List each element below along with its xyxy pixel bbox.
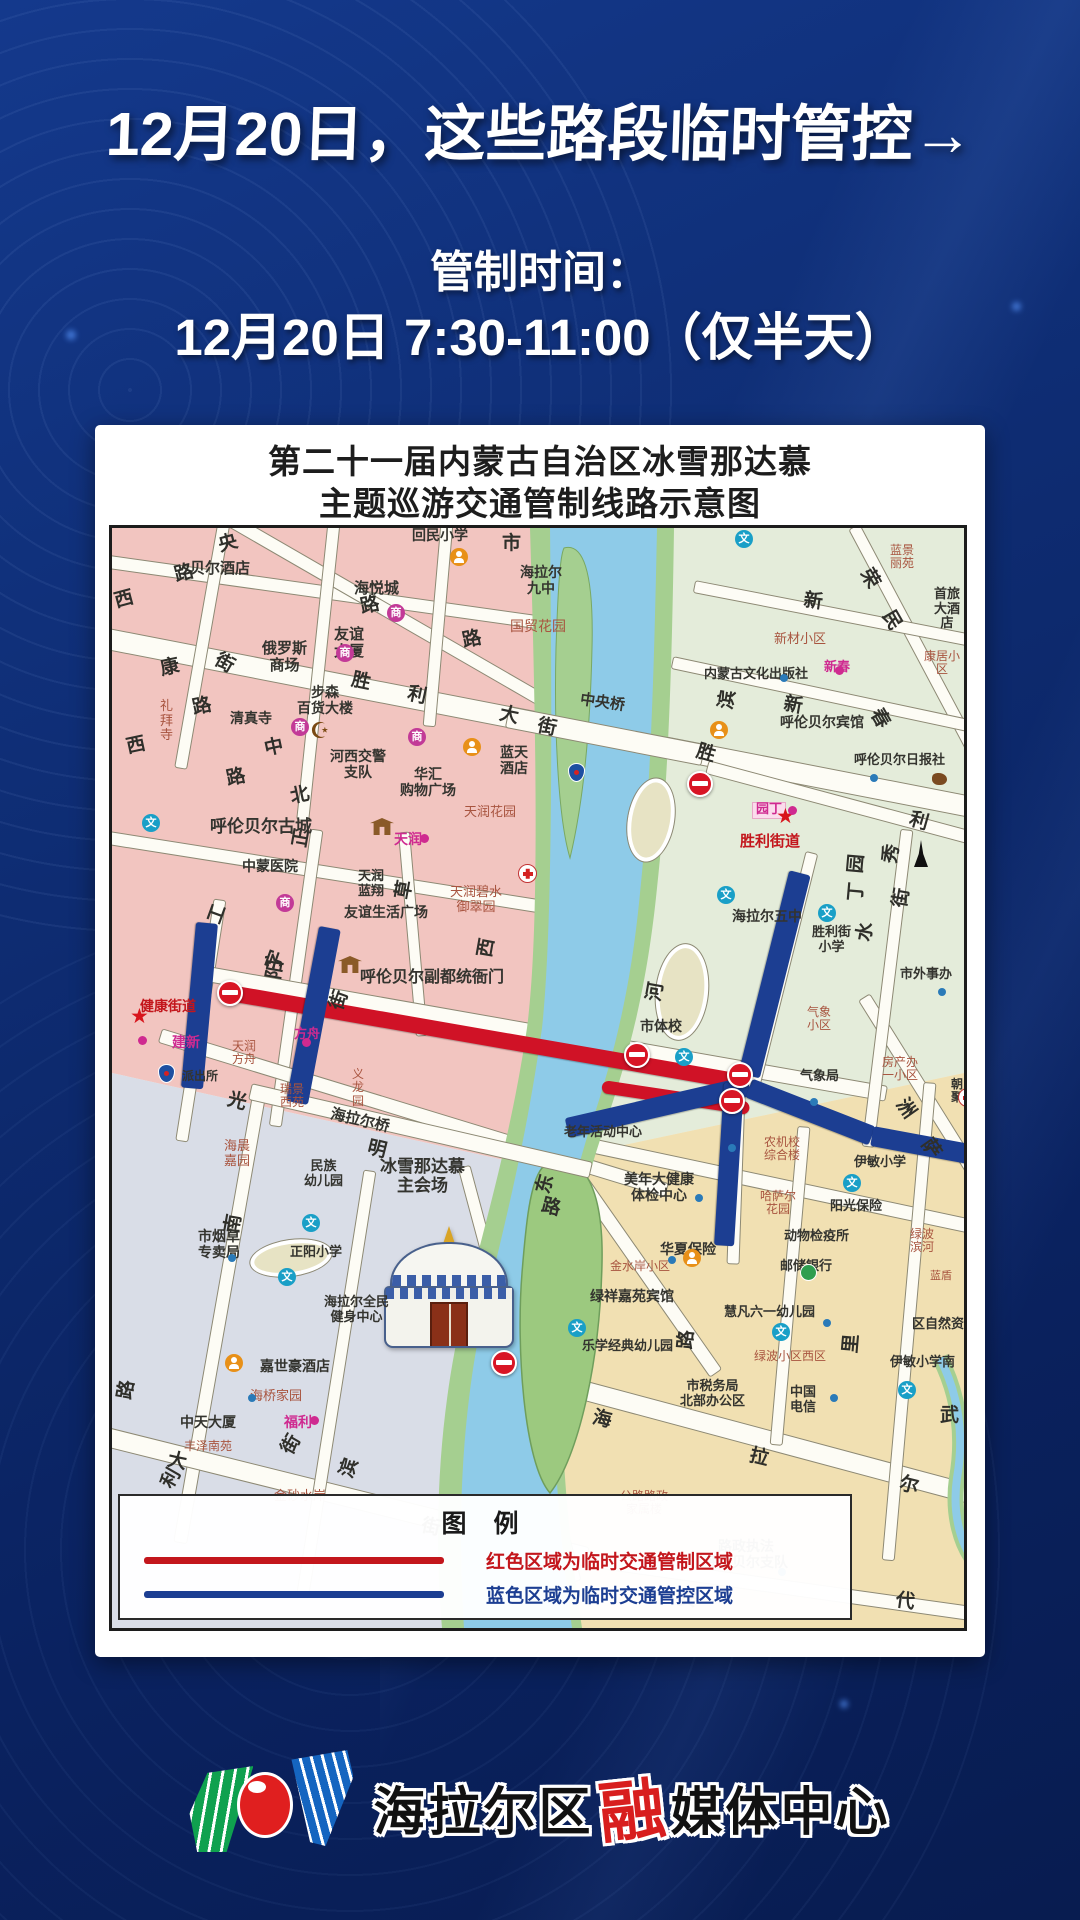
- legend-blue-label: 蓝色区域为临时交通管控区域: [486, 1581, 733, 1608]
- dotb-icon: [870, 774, 878, 782]
- map-label: 步森 百货大楼: [297, 686, 353, 717]
- map-label: 国贸花园: [510, 620, 566, 636]
- map-label: 蓝景 丽苑: [890, 544, 914, 571]
- no-entry-icon: [727, 1062, 753, 1088]
- map-label: 市税务局 北部办公区: [680, 1380, 745, 1409]
- map-label: 民族 幼儿园: [304, 1160, 343, 1189]
- map-label: 呼伦贝尔古城: [210, 818, 312, 837]
- dotb-icon: [728, 1144, 736, 1152]
- map-label: 绿波小区西区: [754, 1350, 826, 1363]
- yurt-body: [384, 1286, 514, 1348]
- legend-red-label: 红色区域为临时交通管制区域: [486, 1547, 733, 1574]
- wen-icon: 文: [142, 814, 160, 832]
- media-center-logo-icon: [189, 1748, 349, 1856]
- map-label: 美年大健康 体检中心: [624, 1173, 694, 1204]
- dotm-icon: [138, 1036, 147, 1045]
- map-label: 瑞景 西苑: [280, 1083, 304, 1110]
- shang-icon: 商: [276, 894, 294, 912]
- hotel-icon: [463, 738, 481, 756]
- no-entry-icon: [719, 1088, 745, 1114]
- dotb-icon: [248, 1394, 256, 1402]
- map-label: 呼伦贝尔日报社: [854, 754, 945, 769]
- map-label: 华汇 购物广场: [400, 768, 456, 799]
- logo-blue-fan: [291, 1750, 353, 1846]
- shang-icon: 商: [387, 604, 405, 622]
- wen-icon: 文: [735, 530, 753, 548]
- wen-icon: 文: [772, 1323, 790, 1341]
- map-label: 海晨 嘉园: [224, 1140, 250, 1169]
- map-label: 海拉尔五中: [732, 910, 802, 926]
- map-label: 福利: [284, 1416, 312, 1432]
- map-label: 金水岸小区: [610, 1260, 670, 1273]
- brand-highlight: 融: [593, 1755, 672, 1858]
- dotm-icon: [835, 666, 844, 675]
- poster: 12月20日，这些路段临时管控→ 管制时间： 12月20日 7:30-11:00…: [0, 0, 1080, 1920]
- control-time-label: 管制时间：: [0, 236, 1080, 300]
- footer-brand: 海拉尔区融媒体中心: [0, 1748, 1080, 1856]
- street-name-char: 市: [502, 528, 521, 555]
- map-label: 阳光保险: [830, 1200, 882, 1215]
- map-label: 海悦城: [354, 580, 399, 597]
- hotel-icon: [710, 721, 728, 739]
- dotm-icon: [302, 1038, 311, 1047]
- shang-icon: 商: [291, 718, 309, 736]
- map-label: 慧凡六一幼儿园: [724, 1306, 815, 1321]
- map-label: 派出所: [182, 1070, 218, 1083]
- map-label: 友谊生活广场: [344, 906, 428, 922]
- no-entry-icon: [491, 1350, 517, 1376]
- map-label: 海拉尔全民 健身中心: [324, 1296, 389, 1325]
- legend-row-red: 红色区域为临时交通管制区域: [144, 1547, 850, 1574]
- brand-prefix: 海拉尔区: [373, 1784, 593, 1842]
- map-legend: 图 例 红色区域为临时交通管制区域 蓝色区域为临时交通管控区域: [118, 1494, 852, 1620]
- logo-red-egg: [237, 1772, 293, 1838]
- street-name-char: 路: [670, 1329, 699, 1350]
- map-label: 天润 方舟: [232, 1040, 256, 1067]
- no-entry-icon: [687, 771, 713, 797]
- map-label: 市体校: [640, 1020, 682, 1036]
- street-name-char: 园: [840, 853, 869, 874]
- map-title-line2: 主题巡游交通管制线路示意图: [95, 483, 985, 525]
- map-canvas: 图 例 红色区域为临时交通管制区域 蓝色区域为临时交通管控区域 胜利大街胜利市央…: [112, 528, 964, 1628]
- map-label: 丰泽南苑: [184, 1440, 232, 1453]
- map-label: 中蒙医院: [242, 860, 298, 876]
- blue-line-swatch: [144, 1591, 444, 1598]
- hotel-icon: [225, 1354, 243, 1372]
- street-name-char: 丁: [840, 881, 869, 902]
- map-label: 老年活动中心: [564, 1126, 642, 1141]
- dotb-icon: [228, 1254, 236, 1262]
- sculpt-icon: [932, 773, 947, 785]
- wen-icon: 文: [302, 1214, 320, 1232]
- dotb-icon: [938, 988, 946, 996]
- map-label: 冰雪那达慕 主会场: [380, 1158, 465, 1196]
- legend-row-blue: 蓝色区域为临时交通管控区域: [144, 1581, 850, 1608]
- brand-suffix: 媒体中心: [671, 1784, 891, 1842]
- yurt-dome: [390, 1242, 508, 1286]
- hotel-icon: [683, 1249, 701, 1267]
- no-entry-icon: [624, 1042, 650, 1068]
- map-label: 伊敏小学南: [890, 1356, 955, 1371]
- street-name-char: 里: [835, 1333, 864, 1354]
- map-label: 呼伦贝尔副都统衙门: [360, 968, 504, 986]
- dotb-icon: [668, 1256, 676, 1264]
- map-label: 中天大厦: [180, 1416, 236, 1432]
- dotb-icon: [780, 674, 788, 682]
- map-label: 回民小学: [412, 529, 468, 545]
- map-label: 蓝盾: [930, 1270, 952, 1282]
- map-label: 天润碧水 御翠园: [450, 886, 502, 915]
- map-label: 农机校 综合楼: [764, 1136, 800, 1163]
- map-label: 区自然资: [912, 1318, 964, 1333]
- wen-icon: 文: [898, 1381, 916, 1399]
- map-label: 嘉世豪酒店: [260, 1360, 330, 1376]
- yurt-door: [430, 1302, 468, 1346]
- street-name-char: 代: [894, 1585, 917, 1614]
- map-label: 首旅 大酒店: [930, 588, 964, 632]
- map-label: 绿祥嘉苑宾馆: [590, 1290, 674, 1306]
- dotg-icon: [800, 1264, 817, 1281]
- no-entry-icon: [217, 980, 243, 1006]
- map-label: 房产办 一小区: [882, 1056, 918, 1083]
- wen-icon: 文: [843, 1174, 861, 1192]
- wen-icon: 文: [818, 904, 836, 922]
- glow-dot: [840, 1700, 848, 1708]
- map-label: 胜利街道: [740, 833, 800, 850]
- map-label: 气象局: [800, 1070, 839, 1085]
- cross-icon: [518, 864, 537, 883]
- legend-title: 图 例: [120, 1504, 850, 1540]
- page-title: 12月20日，这些路段临时管控→: [0, 84, 1080, 173]
- map-label: 海桥家园: [250, 1390, 302, 1405]
- wen-icon: 文: [278, 1268, 296, 1286]
- shang-icon: 商: [336, 644, 354, 662]
- map-label: 康居小区: [920, 650, 964, 677]
- map-label: 建新: [172, 1036, 200, 1052]
- map-card: 第二十一届内蒙古自治区冰雪那达慕 主题巡游交通管制线路示意图: [95, 425, 985, 1657]
- shang-icon: 商: [408, 728, 426, 746]
- map-label: 海拉尔 九中: [520, 566, 562, 597]
- map-label: 天润: [394, 833, 422, 849]
- map-label: 内蒙古文化出版社: [704, 668, 808, 683]
- map-label: 礼 拜 寺: [160, 700, 173, 744]
- hotel-icon: [450, 548, 468, 566]
- map-label: 气象 小区: [807, 1006, 831, 1033]
- map-label: 正阳小学: [290, 1246, 342, 1261]
- wen-icon: 文: [717, 886, 735, 904]
- map-label: 动物检疫所: [784, 1230, 849, 1245]
- star-icon: ★: [130, 1006, 149, 1027]
- map-label: 呼伦贝尔宾馆: [780, 716, 864, 732]
- street-name-char: 新: [802, 585, 825, 614]
- yurt-illustration: [384, 1226, 514, 1354]
- map-label: 义 龙 园: [352, 1068, 364, 1108]
- map-label: 胜利街 小学: [812, 926, 851, 955]
- map-label: 俄罗斯 商场: [262, 640, 307, 674]
- map-label: 天润 蓝翔: [358, 870, 384, 899]
- red-line-swatch: [144, 1557, 444, 1564]
- map-label: 绿波 滨河: [910, 1228, 934, 1255]
- wen-icon: 文: [675, 1048, 693, 1066]
- dotb-icon: [695, 1194, 703, 1202]
- map-label: 乐学经典幼儿园: [582, 1340, 673, 1355]
- dotb-icon: [830, 1394, 838, 1402]
- dotm-icon: [788, 806, 797, 815]
- map-label: 天润花园: [464, 806, 516, 821]
- map-frame: 图 例 红色区域为临时交通管制区域 蓝色区域为临时交通管控区域 胜利大街胜利市央…: [109, 525, 967, 1631]
- dotb-icon: [823, 1319, 831, 1327]
- brand-text: 海拉尔区融媒体中心: [373, 1754, 890, 1850]
- map-label: 蓝天 酒店: [500, 746, 528, 777]
- dotm-icon: [310, 1416, 319, 1425]
- dotm-icon: [420, 834, 429, 843]
- map-title-line1: 第二十一届内蒙古自治区冰雪那达慕: [95, 425, 985, 483]
- map-label: 清真寺: [230, 712, 272, 728]
- map-label: 新材小区: [774, 633, 826, 648]
- control-time-value: 12月20日 7:30-11:00（仅半天）: [0, 296, 1080, 370]
- map-label: 河西交警 支队: [330, 750, 386, 781]
- map-label: 市外事办: [900, 968, 952, 983]
- mosque-icon: ☪: [310, 720, 330, 742]
- map-label: 伊敏小学: [854, 1156, 906, 1171]
- wen-icon: 文: [568, 1319, 586, 1337]
- map-label: 贝尔酒店: [190, 560, 250, 577]
- street-name-char: 武: [940, 1400, 959, 1427]
- map-label: 中国 电信: [790, 1386, 816, 1415]
- dotb-icon: [810, 1098, 818, 1106]
- map-label: 哈萨尔 花园: [760, 1190, 796, 1217]
